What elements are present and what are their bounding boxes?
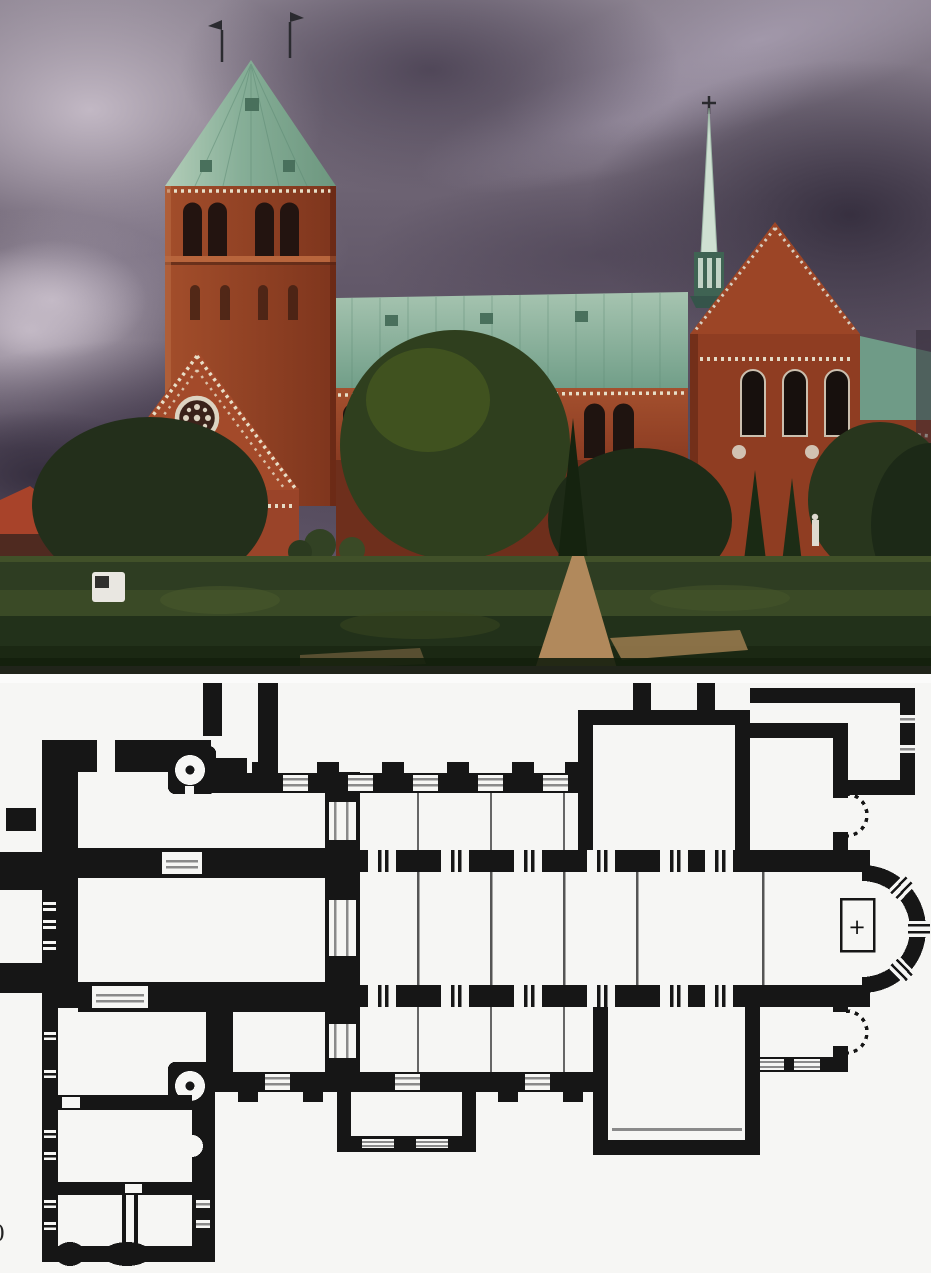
garden-statue [812, 520, 819, 546]
cropped-page-glyph: 0 [0, 1222, 5, 1247]
altar-cross: + [848, 915, 866, 939]
white-van [92, 572, 125, 602]
cathedral-photo-svg [0, 0, 931, 683]
scanned-book-page: + [0, 0, 931, 1273]
altar: + [841, 899, 874, 951]
plan-north-arcade [360, 850, 870, 872]
floor-plan: + [0, 683, 931, 1273]
floor-plan-svg: + [0, 683, 931, 1273]
stair-turret-north [168, 746, 216, 796]
cathedral-photo [0, 0, 931, 683]
plan-south-arcade [360, 985, 870, 1007]
